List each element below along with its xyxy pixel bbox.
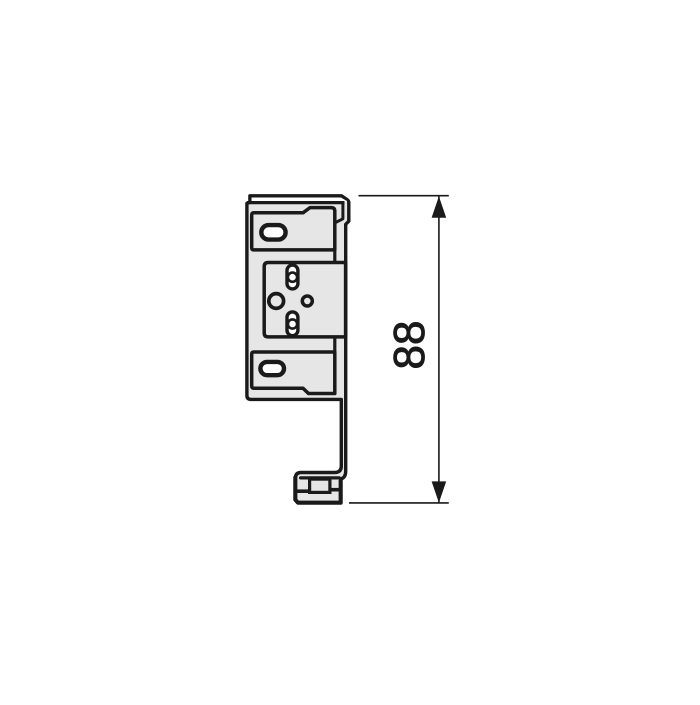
svg-text:88: 88 bbox=[385, 321, 434, 370]
